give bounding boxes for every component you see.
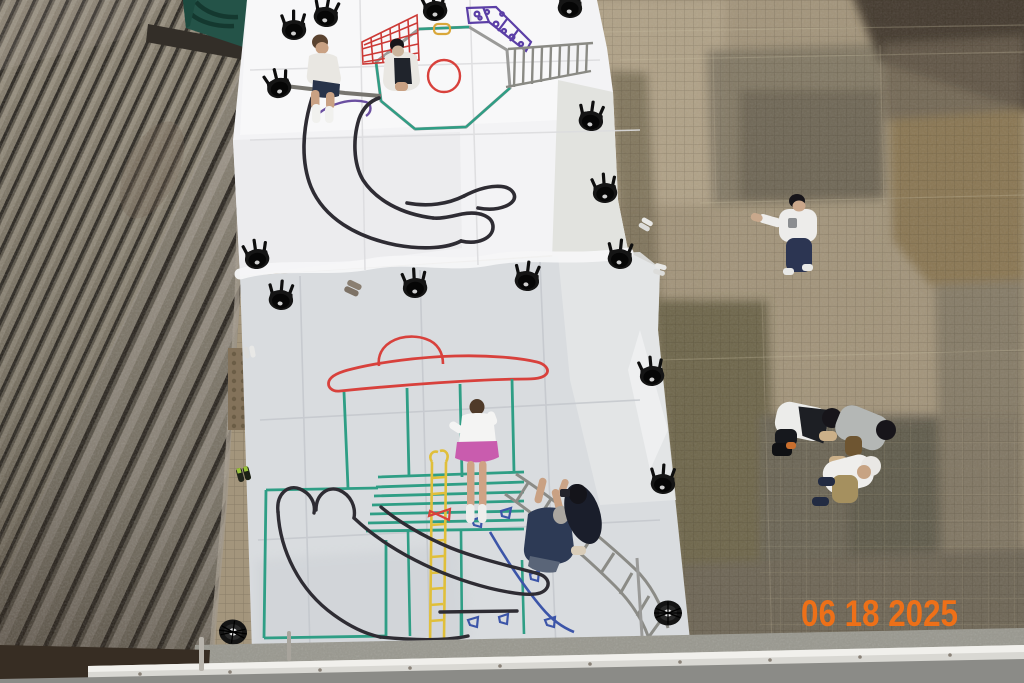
svg-text:06 18 2025: 06 18 2025: [801, 592, 958, 634]
